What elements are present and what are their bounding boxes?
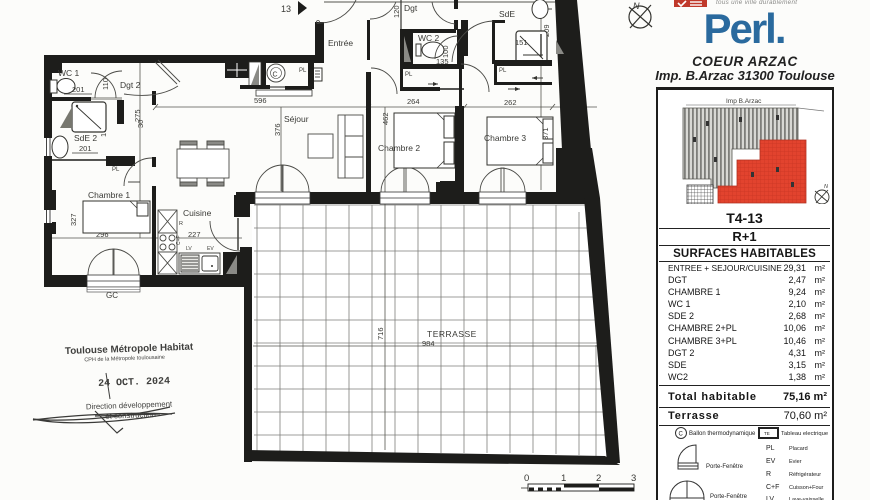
svg-text:LV: LV: [766, 496, 774, 500]
svg-text:C: C: [679, 432, 684, 438]
svg-text:N: N: [824, 184, 828, 190]
svg-text:Porte-Fenêtre: Porte-Fenêtre: [710, 494, 748, 500]
svg-text:Porte-Fenêtre: Porte-Fenêtre: [706, 464, 744, 470]
svg-text:R: R: [766, 471, 771, 478]
svg-text:Réfrigérateur: Réfrigérateur: [789, 472, 821, 478]
svg-text:Placard: Placard: [789, 446, 808, 452]
svg-text:Ballon thermodynamique: Ballon thermodynamique: [689, 431, 756, 437]
svg-text:PL: PL: [766, 445, 775, 452]
svg-text:C+F: C+F: [766, 484, 779, 491]
svg-text:Tableau electrique: Tableau electrique: [781, 431, 828, 437]
svg-text:TE: TE: [764, 431, 770, 436]
svg-text:EV: EV: [766, 458, 776, 465]
svg-text:Cuisson+Four: Cuisson+Four: [789, 485, 824, 491]
svg-text:Evier: Evier: [789, 459, 802, 465]
svg-text:Imp B.Arzac: Imp B.Arzac: [726, 98, 762, 105]
